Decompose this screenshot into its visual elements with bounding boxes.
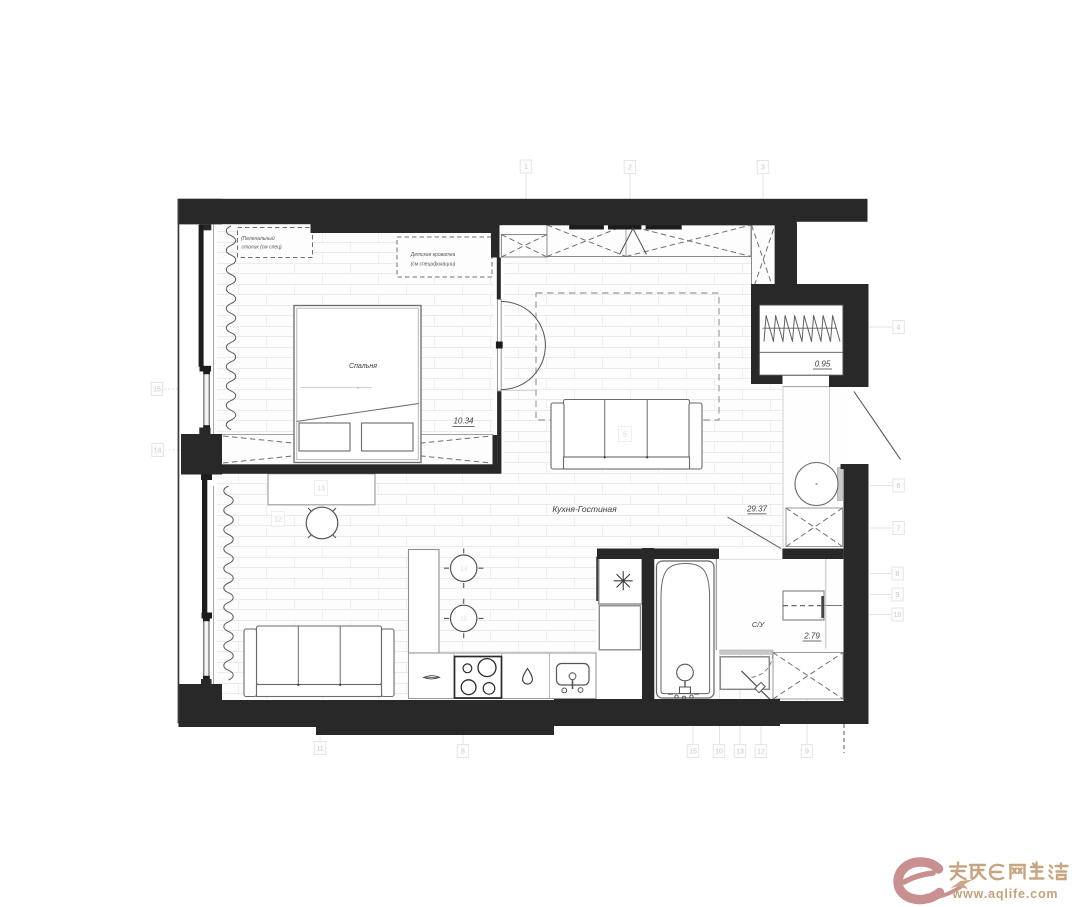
svg-text:8: 8 [896, 571, 900, 578]
svg-text:Детская кроватка: Детская кроватка [410, 252, 456, 258]
svg-text:2.79: 2.79 [803, 632, 820, 641]
svg-text:13: 13 [736, 749, 744, 756]
svg-text:Кухня-Гостиная: Кухня-Гостиная [552, 504, 617, 514]
svg-text:(Пеленальный: (Пеленальный [241, 235, 275, 242]
svg-text:29.37: 29.37 [746, 505, 768, 514]
svg-text:13: 13 [317, 485, 325, 492]
svg-text:9: 9 [896, 592, 900, 599]
svg-text:4: 4 [897, 325, 901, 332]
svg-text:Спальня: Спальня [349, 363, 377, 370]
svg-text:11: 11 [316, 746, 323, 753]
svg-text:С/У: С/У [752, 620, 766, 629]
svg-text:2: 2 [628, 165, 632, 172]
svg-text:www.aqlife.com: www.aqlife.com [952, 887, 1059, 901]
svg-text:13: 13 [460, 566, 468, 573]
svg-text:15: 15 [460, 616, 468, 623]
svg-text:1: 1 [524, 164, 528, 171]
svg-text:(см спецификации): (см спецификации) [411, 262, 456, 268]
svg-text:столик (см спец): столик (см спец) [242, 245, 283, 251]
svg-text:12: 12 [274, 516, 282, 523]
svg-text:12: 12 [757, 749, 765, 756]
svg-text:6: 6 [897, 483, 901, 490]
svg-text:15: 15 [689, 749, 697, 756]
svg-text:5: 5 [623, 431, 627, 438]
svg-text:14: 14 [154, 448, 162, 455]
svg-text:7: 7 [897, 526, 901, 533]
svg-text:10.34: 10.34 [453, 417, 474, 426]
svg-text:3: 3 [761, 165, 765, 172]
svg-text:0.95: 0.95 [815, 360, 831, 369]
svg-text:15: 15 [153, 387, 161, 394]
svg-text:8: 8 [461, 749, 465, 756]
svg-text:9: 9 [805, 749, 809, 756]
svg-text:10: 10 [715, 749, 723, 756]
svg-text:10: 10 [894, 612, 902, 619]
